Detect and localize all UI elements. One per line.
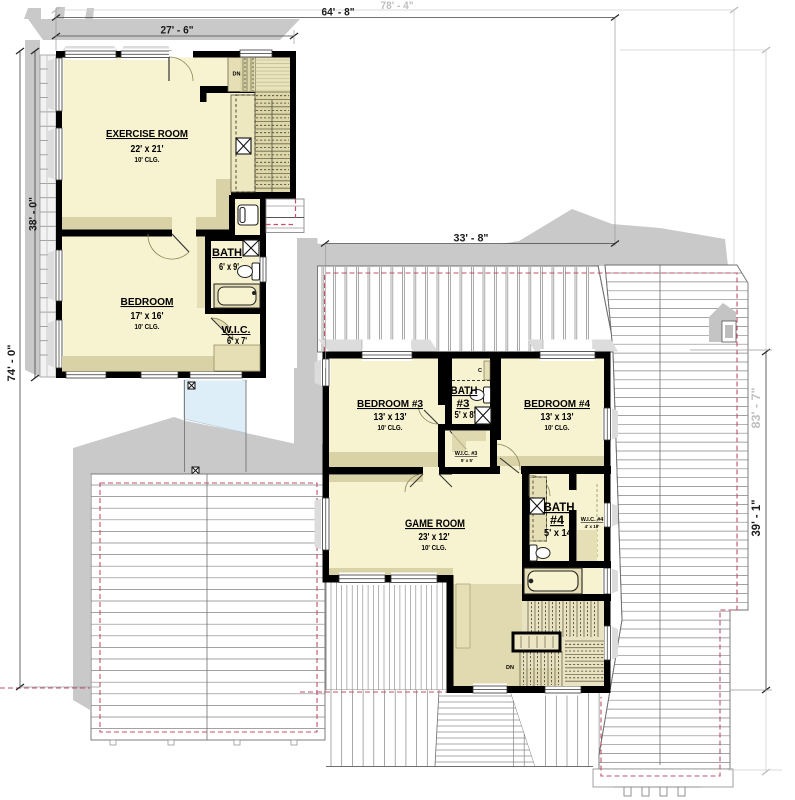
svg-text:#4: #4 — [550, 513, 564, 527]
svg-text:BEDROOM #3: BEDROOM #3 — [357, 398, 423, 410]
svg-text:C: C — [478, 368, 482, 374]
svg-text:6' x 9': 6' x 9' — [219, 262, 239, 273]
svg-text:83' - 7": 83' - 7" — [749, 388, 763, 429]
svg-text:W.I.C. #4: W.I.C. #4 — [581, 517, 605, 523]
svg-text:10' CLG.: 10' CLG. — [545, 425, 570, 432]
svg-text:W.I.C.: W.I.C. — [222, 325, 251, 336]
svg-text:#3: #3 — [457, 398, 470, 410]
svg-text:10' CLG.: 10' CLG. — [135, 324, 160, 331]
svg-text:BEDROOM #4: BEDROOM #4 — [524, 398, 590, 410]
svg-text:DN: DN — [506, 665, 514, 671]
svg-text:17' x 16': 17' x 16' — [131, 311, 164, 322]
svg-text:BATH: BATH — [451, 385, 478, 397]
svg-text:6' x 7': 6' x 7' — [227, 336, 247, 347]
svg-text:78' - 4": 78' - 4" — [381, 0, 414, 12]
svg-text:GAME ROOM: GAME ROOM — [405, 518, 465, 530]
svg-text:5' x 8': 5' x 8' — [455, 410, 476, 421]
svg-text:10' CLG.: 10' CLG. — [378, 425, 403, 432]
svg-text:10' CLG.: 10' CLG. — [422, 545, 447, 552]
svg-text:39' - 1": 39' - 1" — [749, 500, 763, 537]
svg-text:W.I.C. #3: W.I.C. #3 — [455, 451, 478, 457]
svg-text:13' x 13': 13' x 13' — [541, 412, 574, 423]
svg-text:BATH: BATH — [544, 500, 575, 514]
svg-text:BEDROOM: BEDROOM — [121, 296, 174, 308]
svg-text:5' x 5': 5' x 5' — [461, 458, 473, 463]
svg-text:23' x 12': 23' x 12' — [419, 532, 450, 543]
svg-text:38' - 0": 38' - 0" — [28, 197, 40, 231]
svg-text:74' - 0": 74' - 0" — [6, 345, 18, 382]
svg-text:33' - 8": 33' - 8" — [454, 233, 489, 245]
svg-text:EXERCISE ROOM: EXERCISE ROOM — [106, 128, 188, 140]
svg-text:13' x 13': 13' x 13' — [374, 412, 407, 423]
svg-text:10' CLG.: 10' CLG. — [135, 157, 160, 164]
svg-text:5' x 14': 5' x 14' — [544, 528, 574, 539]
svg-text:4' x 10': 4' x 10' — [585, 524, 600, 529]
svg-text:BATH: BATH — [212, 247, 242, 259]
svg-text:27' - 6": 27' - 6" — [161, 25, 194, 37]
svg-text:22' x 21': 22' x 21' — [131, 144, 164, 155]
svg-text:64' - 8": 64' - 8" — [322, 7, 355, 19]
svg-text:DN: DN — [233, 72, 241, 78]
